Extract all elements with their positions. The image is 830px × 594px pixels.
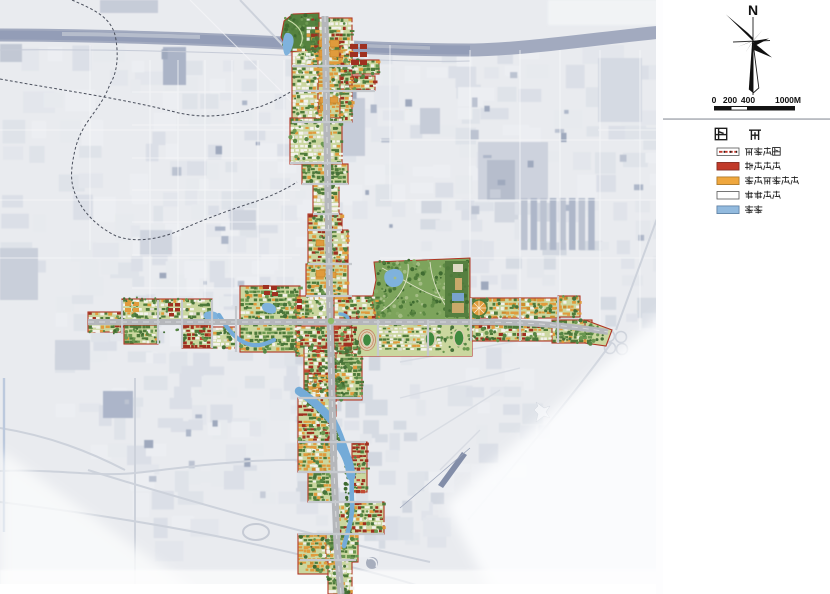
svg-text:1000M: 1000M bbox=[775, 95, 801, 105]
svg-text:0: 0 bbox=[712, 95, 717, 105]
svg-text:N: N bbox=[748, 2, 758, 18]
svg-text:400: 400 bbox=[741, 95, 755, 105]
svg-text:200: 200 bbox=[723, 95, 737, 105]
